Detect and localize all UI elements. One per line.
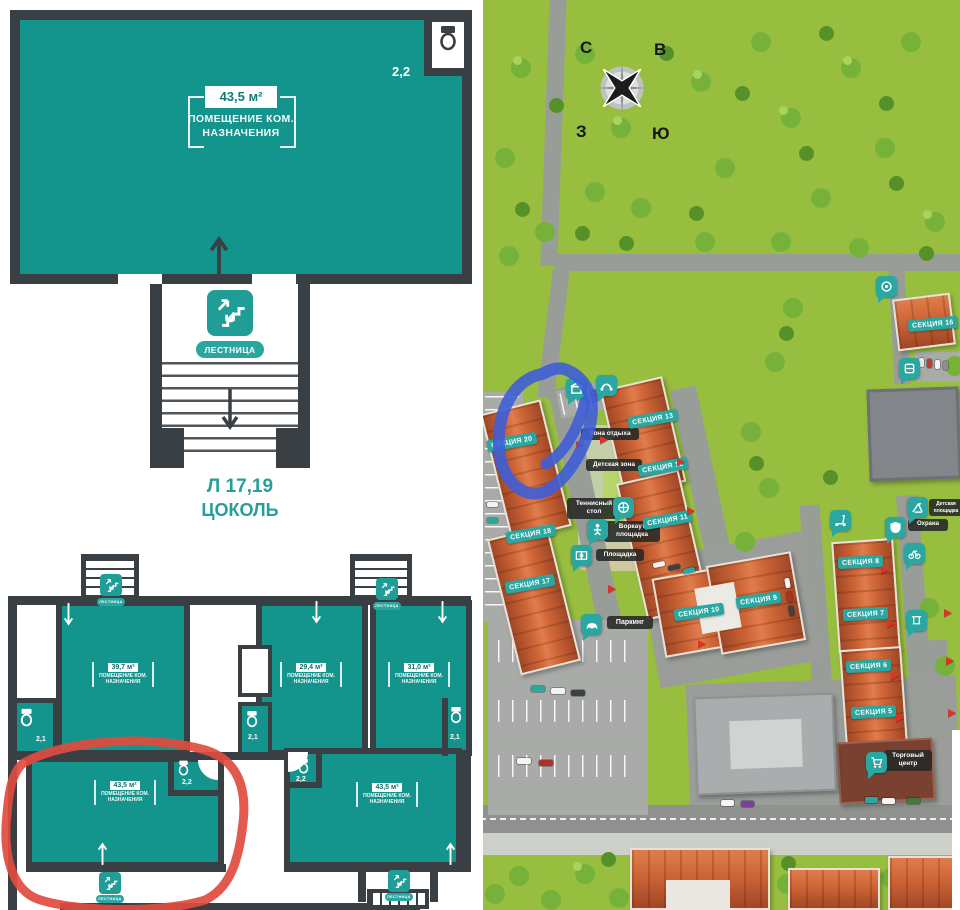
entrance-arrow-icon <box>62 602 75 626</box>
flag-marker <box>698 640 706 648</box>
flag-marker <box>687 507 695 515</box>
basketball-icon <box>613 497 634 518</box>
bath-area-label: 2,1 <box>450 734 460 741</box>
flag-marker <box>896 714 904 722</box>
stairs-label: ЛЕСТНИЦА <box>373 602 401 610</box>
road <box>540 0 566 266</box>
section-label-6: СЕКЦИЯ 6 <box>846 659 892 673</box>
parking-label: Паркинг <box>607 616 653 629</box>
compass-west: З <box>576 122 587 142</box>
playground-slide-icon <box>907 497 928 518</box>
compass-south: Ю <box>652 124 670 144</box>
tree-cluster-dark <box>483 0 498 15</box>
entrance-arrow-icon <box>444 842 457 866</box>
amenity-icon <box>899 358 920 379</box>
car <box>927 359 932 368</box>
swing-icon <box>906 610 927 631</box>
car <box>551 688 565 694</box>
compass-rose: С В З Ю <box>570 34 674 146</box>
level-name: ЦОКОЛЬ <box>150 500 330 521</box>
car <box>539 760 553 766</box>
shopping-cart-icon <box>866 752 887 773</box>
kids-playground-label: Детская площадка <box>929 499 960 516</box>
flag-marker <box>944 609 952 617</box>
wall <box>430 868 438 902</box>
sport-field-icon <box>571 545 592 566</box>
image-margin <box>952 730 960 910</box>
flag-marker <box>677 458 685 466</box>
toilet-icon <box>246 710 258 728</box>
unit-area-value: 31,0 м² <box>404 663 433 672</box>
unit-area-value: 43,5 м² <box>205 86 277 108</box>
courtyard <box>729 719 803 769</box>
toilet-icon <box>20 708 33 727</box>
level-code: Л 17,19 <box>150 476 330 498</box>
compass-north: С <box>580 38 592 58</box>
amenity-icon <box>876 276 897 297</box>
overview-unit-5 <box>284 748 462 868</box>
wc-room <box>424 14 472 76</box>
bike-icon <box>904 543 925 564</box>
unit-purpose-label: ПОМЕЩЕНИЕ КОМ. НАЗНАЧЕНИЯ <box>360 793 414 806</box>
toilet-icon <box>439 25 457 51</box>
car <box>721 800 734 806</box>
stairs-label: ЛЕСТНИЦА <box>196 341 264 358</box>
parking-markings <box>498 700 638 722</box>
car <box>865 797 878 803</box>
unit-label: 43,5 м² ПОМЕЩЕНИЕ КОМ. НАЗНАЧЕНИЯ <box>356 782 418 807</box>
flag-marker <box>608 585 616 593</box>
unit-purpose-label: ПОМЕЩЕНИЕ КОМ. НАЗНАЧЕНИЯ <box>96 673 150 686</box>
detail-room <box>10 10 472 284</box>
car <box>935 360 940 369</box>
wall <box>150 284 162 432</box>
compass-east: В <box>654 40 666 60</box>
bath-area-label: 2,2 <box>392 64 410 79</box>
unit-purpose-label: ПОМЕЩЕНИЕ КОМ. НАЗНАЧЕНИЯ <box>180 112 302 140</box>
entrance-arrow-icon <box>436 600 449 624</box>
toilet-icon <box>450 706 462 724</box>
flag-marker <box>887 620 895 628</box>
toilet-icon <box>298 758 309 774</box>
road-center-line <box>483 818 960 820</box>
floorplan-panel: 2,2 43,5 м² ПОМЕЩЕНИЕ КОМ. НАЗНАЧЕНИЯ ЛЕ… <box>0 0 483 910</box>
car-icon <box>581 614 602 635</box>
flag-marker <box>881 566 889 574</box>
compass-star-icon <box>586 52 658 124</box>
section-label-7: СЕКЦИЯ 7 <box>843 607 889 621</box>
stairs-label: ЛЕСТНИЦА <box>385 893 413 901</box>
stairs-icon <box>207 290 253 336</box>
stairs-down-arrow-icon <box>220 360 240 458</box>
section-label-5: СЕКЦИЯ 5 <box>851 705 897 719</box>
wall <box>298 284 310 432</box>
car <box>487 518 498 523</box>
entrance-arrow-icon <box>310 600 323 624</box>
unit-area-value: 29,4 м² <box>296 663 325 672</box>
car <box>517 758 531 764</box>
car <box>571 690 585 696</box>
unit-area-value: 43,5 м² <box>372 783 401 792</box>
wall <box>150 428 184 468</box>
scooter-icon <box>830 510 851 531</box>
playground-label: Площадка <box>596 549 644 561</box>
stairs-icon <box>388 870 410 892</box>
bath-area-label: 2,2 <box>296 776 306 783</box>
parking-garage <box>866 386 960 481</box>
car <box>907 798 920 804</box>
flag-marker <box>948 709 956 717</box>
courtyard <box>666 880 730 910</box>
unit-purpose-label: ПОМЕЩЕНИЕ КОМ. НАЗНАЧЕНИЯ <box>392 673 446 686</box>
unit-label: 39,7 м² ПОМЕЩЕНИЕ КОМ. НАЗНАЧЕНИЯ <box>92 662 154 687</box>
door-opening <box>252 274 296 284</box>
shaft <box>238 645 272 697</box>
unit-area-value: 39,7 м² <box>108 663 137 672</box>
site-map-panel: СЕКЦИЯ 16 СЕКЦИЯ 13 СЕКЦИЯ 12 СЕКЦИЯ 11 … <box>483 0 960 910</box>
workout-icon <box>587 519 608 540</box>
unit-label: 29,4 м² ПОМЕЩЕНИЕ КОМ. НАЗНАЧЕНИЯ <box>280 662 342 687</box>
wall <box>276 428 310 468</box>
red-highlight-circle <box>0 728 256 910</box>
unit-purpose-label: ПОМЕЩЕНИЕ КОМ. НАЗНАЧЕНИЯ <box>284 673 338 686</box>
door-opening <box>118 274 162 284</box>
stairs-icon <box>376 578 398 600</box>
screenshot-root: 2,2 43,5 м² ПОМЕЩЕНИЕ КОМ. НАЗНАЧЕНИЯ ЛЕ… <box>0 0 960 910</box>
stairs-icon <box>100 574 122 596</box>
entrance-arrow-icon <box>208 232 230 286</box>
tree-cluster-light <box>483 0 503 20</box>
flag-marker <box>891 672 899 680</box>
blue-highlight-circle <box>488 360 610 512</box>
section-label-8: СЕКЦИЯ 8 <box>838 555 884 569</box>
house <box>888 856 960 910</box>
shield-icon <box>885 517 906 538</box>
unit-label: 31,0 м² ПОМЕЩЕНИЕ КОМ. НАЗНАЧЕНИЯ <box>388 662 450 687</box>
house <box>788 868 880 910</box>
mall-label: Торговый центр <box>884 750 932 771</box>
stairs-label: ЛЕСТНИЦА <box>97 598 125 606</box>
wall <box>442 698 448 756</box>
flag-marker <box>946 657 954 665</box>
car <box>943 361 948 370</box>
car <box>882 798 895 804</box>
wall <box>358 868 366 902</box>
car <box>741 801 754 807</box>
car <box>531 686 545 692</box>
tree-highlights <box>483 0 492 9</box>
